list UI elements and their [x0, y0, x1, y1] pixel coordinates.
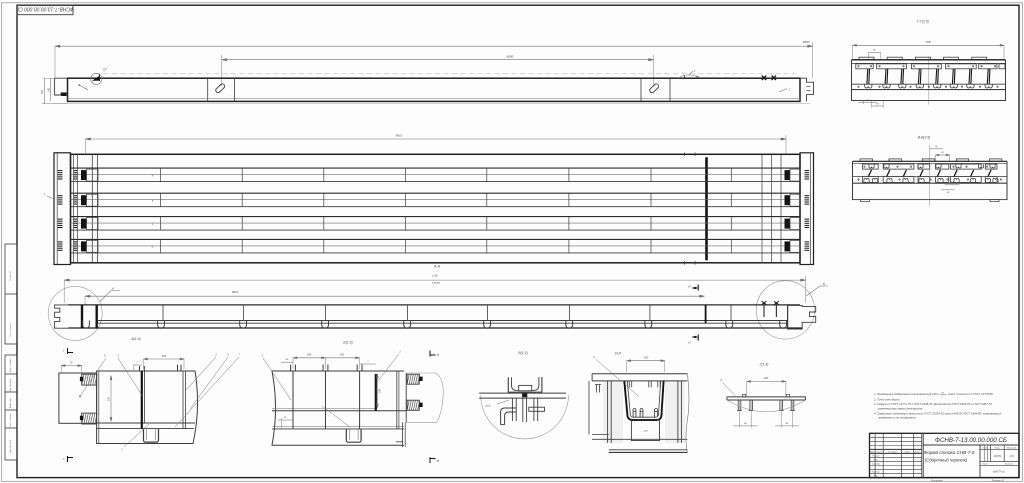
svg-text:ФСНВ-7-13.00.00.000 СБ: ФСНВ-7-13.00.00.000 СБ — [15, 5, 74, 11]
svg-text:в узлах: в узлах — [432, 282, 441, 285]
svg-text:Взам. инв.: Взам. инв. — [10, 397, 12, 408]
svg-text:Масштаб: Масштаб — [1007, 447, 1017, 449]
svg-text:Форма стойки СНВ-7-0: Форма стойки СНВ-7-0 — [924, 449, 975, 455]
svg-text:300: 300 — [644, 356, 649, 360]
svg-text:А-А: А-А — [433, 265, 441, 269]
svg-text:295: 295 — [379, 388, 382, 394]
svg-text:Разраб.: Разраб. — [872, 455, 880, 457]
svg-text:1. Предельные добавочные откло: 1. Предельные добавочные отклонения НК-1… — [874, 392, 939, 396]
svg-text:140: 140 — [47, 87, 50, 92]
svg-text:6000: 6000 — [507, 55, 514, 59]
svg-text:200: 200 — [306, 353, 312, 357]
svg-text:200: 200 — [763, 376, 769, 380]
svg-text:заменяющими марки электродов.: заменяющими марки электродов. — [877, 406, 923, 410]
svg-text:Б: Б — [823, 282, 825, 286]
svg-text:Г-Г(1:5): Г-Г(1:5) — [917, 20, 929, 24]
svg-text:-200: -200 — [643, 431, 648, 433]
svg-text:150: 150 — [41, 89, 44, 94]
svg-text:Инв. № дубл.: Инв. № дубл. — [9, 378, 12, 392]
svg-text:Утв.: Утв. — [874, 476, 879, 478]
svg-text:В(1:2): В(1:2) — [518, 351, 527, 355]
svg-text:А(1:5): А(1:5) — [130, 337, 140, 341]
svg-text:Пров.: Пров. — [873, 459, 879, 461]
svg-text:(1:6): (1:6) — [432, 274, 437, 278]
svg-text:Н.контр.: Н.контр. — [872, 472, 881, 474]
svg-text:НОП1: НОП1 — [994, 454, 1002, 458]
svg-text:КубГТУ гр.: КубГТУ гр. — [993, 471, 1005, 474]
svg-text:И-И: И-И — [615, 351, 622, 355]
svg-text:200: 200 — [161, 354, 167, 358]
svg-text:7440: 7440 — [925, 40, 931, 44]
svg-text:Т.контр.: Т.контр. — [872, 463, 881, 465]
svg-text:Лист: Лист — [982, 464, 988, 466]
svg-text:1:6: 1:6 — [1009, 454, 1014, 458]
svg-text:Подп. и дата: Подп. и дата — [9, 413, 12, 427]
svg-text:Справ. №: Справ. № — [9, 270, 12, 281]
svg-text:Подп. и дата: Подп. и дата — [9, 358, 12, 372]
svg-text:(Сборочный чертеж): (Сборочный чертеж) — [925, 458, 968, 463]
svg-text:В-В(1:5): В-В(1:5) — [918, 136, 931, 140]
svg-text:Б(1:5): Б(1:5) — [343, 341, 352, 345]
svg-text:А: А — [111, 287, 114, 291]
svg-text:9610: 9610 — [232, 290, 239, 294]
svg-text:Перв. примен.: Перв. примен. — [10, 322, 12, 337]
svg-text:поверхности не шлифовать.: поверхности не шлифовать. — [878, 416, 917, 420]
svg-text:9660: 9660 — [803, 40, 810, 44]
svg-text:200: 200 — [339, 353, 345, 357]
svg-text:9610: 9610 — [396, 134, 403, 138]
svg-text:класс точности С ГОСТ 21779-82: класс точности С ГОСТ 21779-82. — [948, 392, 994, 396]
svg-text:Листов 1: Листов 1 — [1004, 464, 1013, 466]
svg-text:поз.2: поз.2 — [485, 405, 491, 408]
svg-text:Г(1:4): Г(1:4) — [760, 363, 769, 367]
svg-text:2. Точки для сборки.: 2. Точки для сборки. — [873, 398, 901, 402]
svg-text:Формат А1: Формат А1 — [992, 480, 1005, 483]
svg-text:Масса: Масса — [995, 447, 1001, 449]
svg-text:150: 150 — [108, 396, 111, 401]
svg-text:В: В — [437, 459, 439, 463]
svg-text:Инв. № подл.: Инв. № подл. — [9, 439, 12, 453]
svg-text:В: В — [437, 353, 439, 357]
svg-text:Лит.: Лит. — [982, 447, 988, 449]
svg-text:Копировал: Копировал — [931, 481, 943, 483]
svg-text:ФСНВ-7-13.00.00.000 СБ: ФСНВ-7-13.00.00.000 СБ — [935, 437, 1007, 444]
